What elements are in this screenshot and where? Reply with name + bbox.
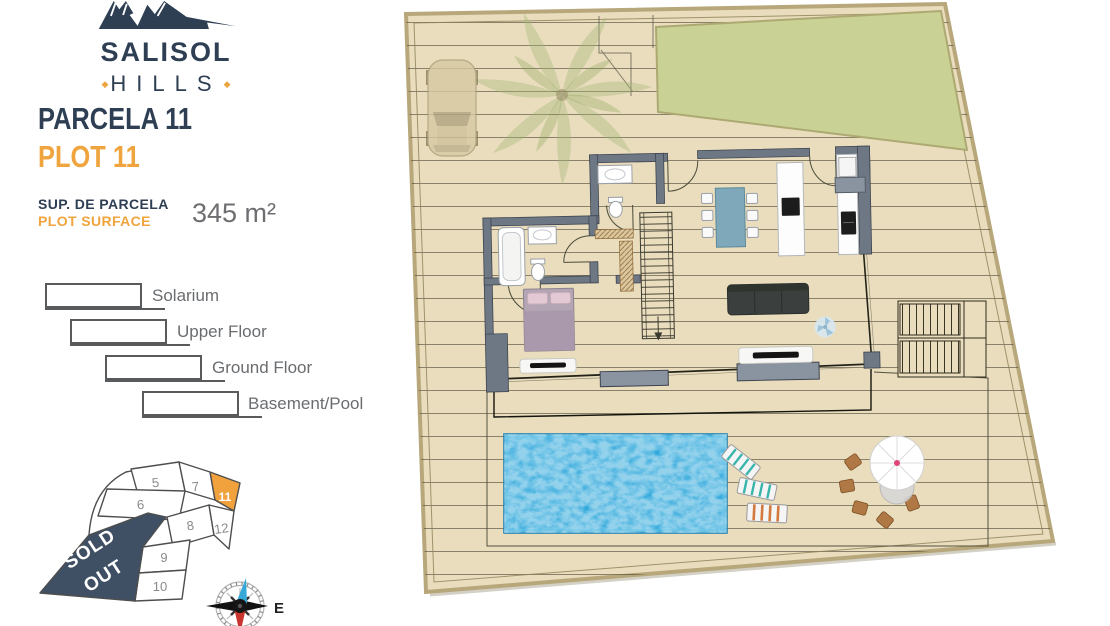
dining-chair [702, 227, 713, 237]
staircase [640, 212, 675, 341]
legend-underline [45, 308, 165, 310]
sliding-door-panel [737, 362, 819, 381]
legend-label-ground-floor: Ground Floor [212, 358, 312, 378]
mountains-icon [96, 0, 236, 30]
pillow [527, 293, 547, 304]
minimap-plot-number: 5 [151, 475, 160, 491]
patio-chair-icon [839, 479, 855, 493]
bed-blanket [524, 310, 575, 351]
dining-chair [701, 193, 712, 203]
legend-label-basement-pool: Basement/Pool [248, 394, 363, 414]
legend-underline [142, 416, 262, 418]
brand-logo: SALISOL ◆ HILLS ◆ [60, 0, 272, 97]
plan-page: { "brand": { "name": "SALISOL", "sub": "… [0, 0, 1110, 626]
legend-label-upper-floor: Upper Floor [177, 322, 267, 342]
minimap-plot-number: 7 [191, 479, 200, 495]
legend-underline [105, 380, 225, 382]
brand-dot-left-icon: ◆ [102, 80, 109, 89]
brand-dot-right-icon: ◆ [224, 80, 231, 89]
legend-label-solarium: Solarium [152, 286, 219, 306]
minimap-plot-number: 9 [160, 550, 167, 565]
minimap-plot-number-11: 11 [219, 490, 232, 504]
page-title-plot: PLOT 11 [38, 139, 140, 175]
lounger-icon [747, 503, 788, 523]
fridge [839, 157, 856, 176]
brand-name: SALISOL [60, 37, 272, 68]
dining-chair [747, 227, 758, 237]
brand-subname: ◆ HILLS ◆ [60, 71, 272, 97]
counter-block [835, 177, 865, 193]
dining-chair [702, 210, 713, 220]
legend-row-solarium [45, 283, 165, 310]
legend-box-upper-floor [70, 319, 167, 344]
car-icon [426, 60, 478, 156]
legend-box-solarium [45, 283, 142, 308]
exterior-stairs [898, 301, 986, 377]
minimap-plot-number: 12 [213, 520, 229, 537]
site-plan [395, 0, 1065, 626]
surface-value: 345 m² [192, 198, 276, 229]
tv [530, 362, 566, 368]
pool [504, 434, 727, 533]
legend-box-ground-floor [105, 355, 202, 380]
wc-toilet [609, 201, 622, 217]
wc-sink [598, 165, 632, 184]
compass-east-label: E [274, 600, 284, 617]
sliding-door-panel [600, 370, 668, 386]
minimap-plot-number: 10 [153, 579, 167, 594]
legend-row-basement-pool [142, 391, 262, 418]
pillow [550, 292, 570, 303]
bedroom [523, 288, 574, 351]
cooktop [782, 197, 800, 215]
page-title-parcela: PARCELA 11 [38, 101, 192, 137]
dining-chair [746, 193, 757, 203]
compass-icon: E [206, 578, 284, 626]
dining-table [715, 188, 745, 248]
plot-minimap: 5 7 11 6 8 12 9 10 SOLD OUT E [0, 440, 320, 626]
tv [753, 352, 799, 359]
bathroom-sink [528, 227, 556, 245]
surface-label-en: PLOT SURFACE [38, 213, 151, 229]
minimap-plot-number: 6 [136, 497, 145, 513]
toilet [531, 263, 544, 280]
legend-row-ground-floor [105, 355, 225, 382]
legend-underline [70, 344, 190, 346]
surface-label-es: SUP. DE PARCELA [38, 196, 169, 212]
parasol-icon [870, 436, 924, 490]
legend-row-upper-floor [70, 319, 190, 346]
legend-box-basement-pool [142, 391, 239, 416]
dining-chair [747, 210, 758, 220]
